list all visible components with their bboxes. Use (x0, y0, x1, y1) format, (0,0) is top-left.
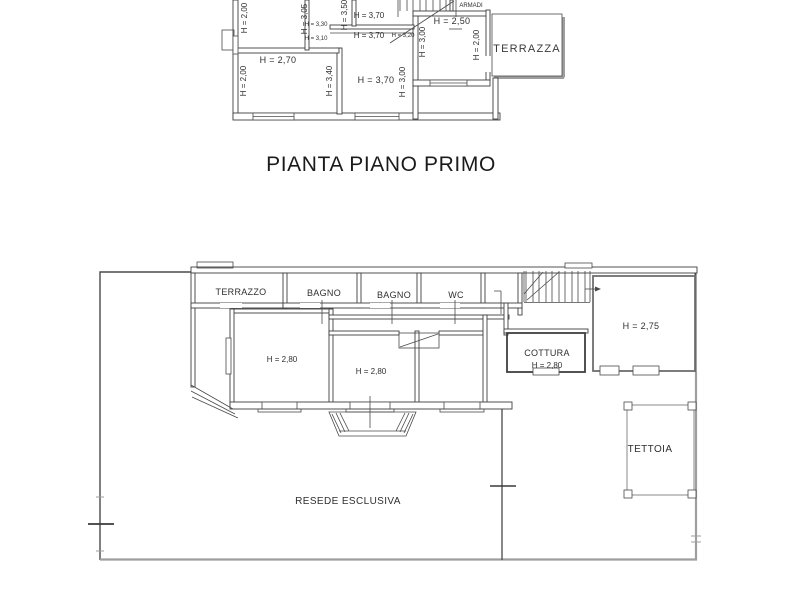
room-label-bagno-1: BAGNO (307, 288, 341, 298)
height-label: H = 2,00 (240, 2, 249, 33)
height-label: H = 3,70 (354, 11, 385, 20)
terrazza-label: TERRAZZA (493, 43, 561, 55)
height-label: H = 3,10 (305, 36, 329, 42)
height-label: H = 3,05 (300, 3, 309, 34)
room-label-wc: WC (448, 290, 464, 300)
lower-plan: TERRAZZO BAGNO BAGNO WC H = 2,75 COTTURA… (88, 262, 701, 560)
room-label-bagno-2: BAGNO (377, 290, 411, 300)
height-label: H = 3,00 (398, 66, 407, 97)
plan-title: PIANTA PIANO PRIMO (266, 153, 496, 176)
garden-steps (329, 412, 416, 436)
height-label: H = 3,50 (340, 0, 349, 30)
height-label: H = 2,75 (623, 321, 660, 331)
lower-windows (226, 338, 659, 428)
room-label-cottura: COTTURA (524, 348, 570, 358)
resede-label: RESEDE ESCLUSIVA (295, 496, 401, 507)
plot-boundary (88, 268, 701, 560)
height-label: H = 2,80 (532, 361, 563, 370)
height-label: H = 2,70 (260, 55, 297, 65)
height-label: H = 3,40 (325, 65, 334, 96)
height-label: H = 3,30 (305, 22, 329, 28)
height-label: H = 2,80 (356, 367, 387, 376)
height-label: H = 2,00 (239, 65, 248, 96)
lower-plan-walls (191, 262, 697, 409)
height-label: H = 3,70 (358, 75, 395, 85)
height-label: H = 2,00 (472, 29, 481, 60)
terrazza-door-opening (485, 56, 491, 72)
floor-plan-page: H = 2,00 H = 3,05 H = 3,50 H = 3,70 H = … (0, 0, 800, 600)
room-label-terrazzo: TERRAZZO (216, 287, 267, 297)
floor-plan-image: H = 2,00 H = 3,05 H = 3,50 H = 3,70 H = … (0, 0, 800, 600)
room-label-tettoia: TETTOIA (628, 444, 673, 455)
height-label: H = 2,50 (434, 16, 471, 26)
height-label: H = 2,80 (267, 355, 298, 364)
height-label: H = 3,20 (392, 33, 416, 39)
armadi-label: ARMADI (459, 3, 483, 9)
lower-stair (524, 271, 601, 303)
height-label: H = 3,70 (354, 31, 385, 40)
upper-plan: H = 2,00 H = 3,05 H = 3,50 H = 3,70 H = … (222, 0, 564, 120)
height-label: H = 3,00 (418, 26, 427, 57)
